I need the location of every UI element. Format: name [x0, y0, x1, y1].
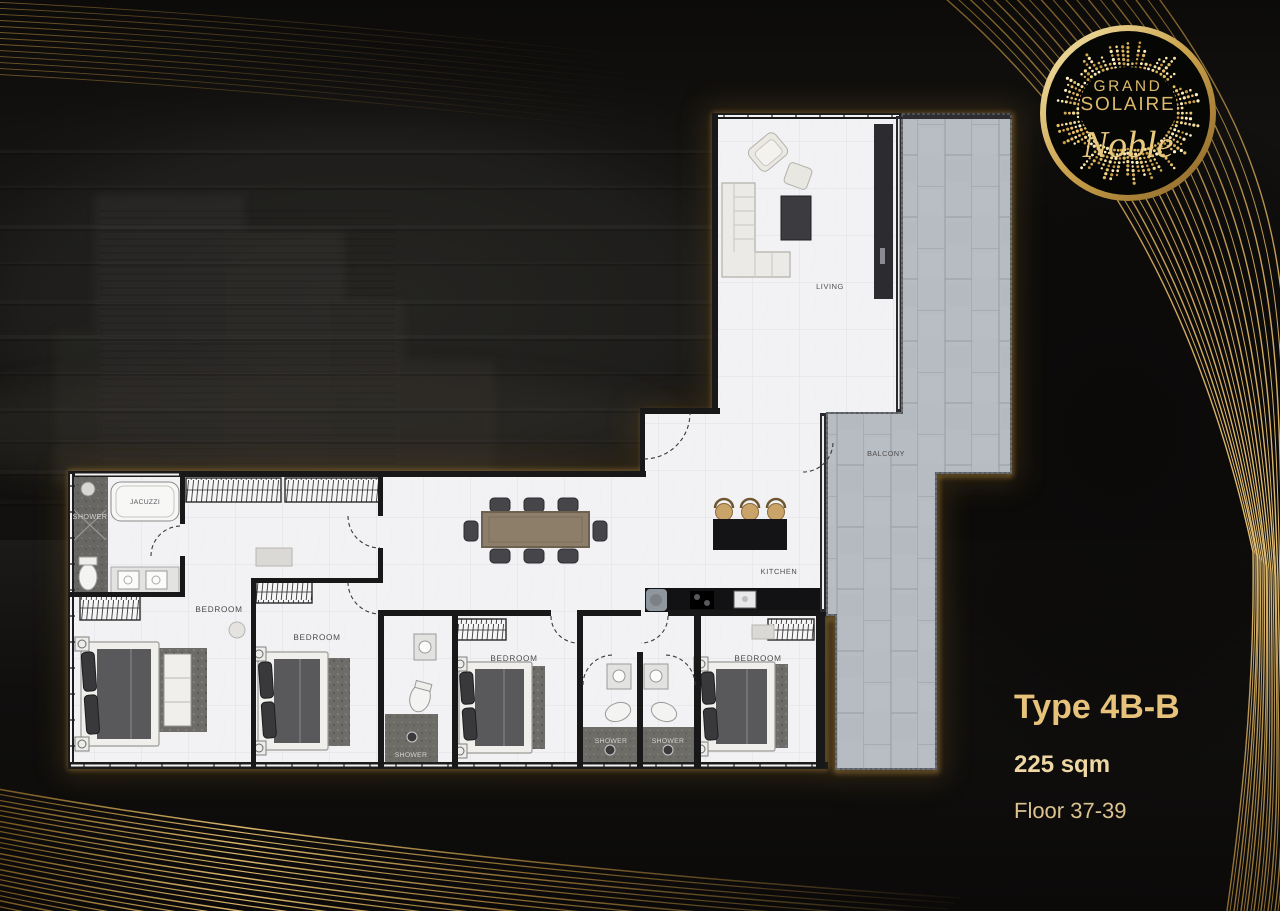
- svg-text:LIVING: LIVING: [816, 282, 844, 291]
- svg-text:SHOWER: SHOWER: [73, 512, 108, 521]
- svg-text:Floor 37-39: Floor 37-39: [1014, 798, 1127, 823]
- svg-text:GRAND: GRAND: [1094, 78, 1163, 95]
- svg-text:SOLAIRE: SOLAIRE: [1081, 94, 1176, 115]
- svg-text:Type 4B-B: Type 4B-B: [1014, 688, 1180, 726]
- svg-text:KITCHEN: KITCHEN: [761, 567, 798, 576]
- svg-text:225 sqm: 225 sqm: [1014, 751, 1110, 778]
- svg-text:JACUZZI: JACUZZI: [130, 499, 160, 506]
- svg-text:BALCONY: BALCONY: [867, 449, 905, 458]
- svg-text:BEDROOM: BEDROOM: [734, 654, 781, 663]
- svg-text:Noble: Noble: [1082, 124, 1174, 166]
- svg-text:BEDROOM: BEDROOM: [293, 633, 340, 642]
- svg-text:SHOWER: SHOWER: [595, 738, 627, 745]
- svg-text:SHOWER: SHOWER: [395, 752, 427, 759]
- svg-text:SHOWER: SHOWER: [652, 738, 684, 745]
- svg-text:BEDROOM: BEDROOM: [490, 654, 537, 663]
- svg-text:BEDROOM: BEDROOM: [195, 605, 242, 614]
